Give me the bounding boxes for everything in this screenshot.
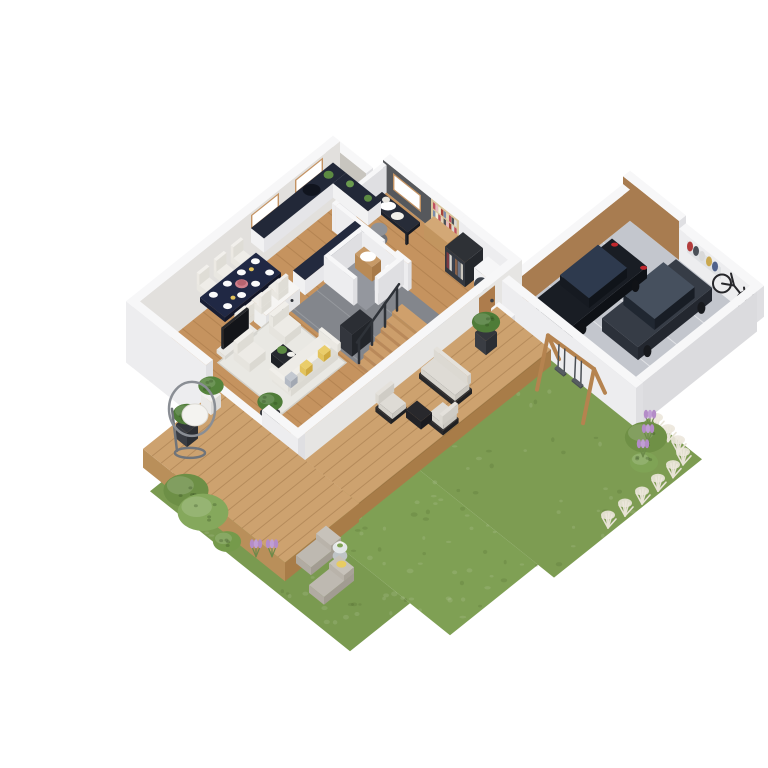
door-handle: [490, 299, 494, 303]
desk-leg-right: [405, 232, 408, 246]
garden-bush-south-2: [178, 494, 229, 531]
bathroom-sink: [360, 252, 376, 262]
garden-bush-south-3: [213, 531, 241, 552]
deck-planter-plant: [472, 312, 500, 333]
isometric-house-floor-plan: [0, 0, 768, 768]
floor-plan-canvas: [0, 0, 768, 768]
lounger-pillow-yellow: [336, 561, 346, 568]
kitchen-sink: [303, 184, 321, 196]
